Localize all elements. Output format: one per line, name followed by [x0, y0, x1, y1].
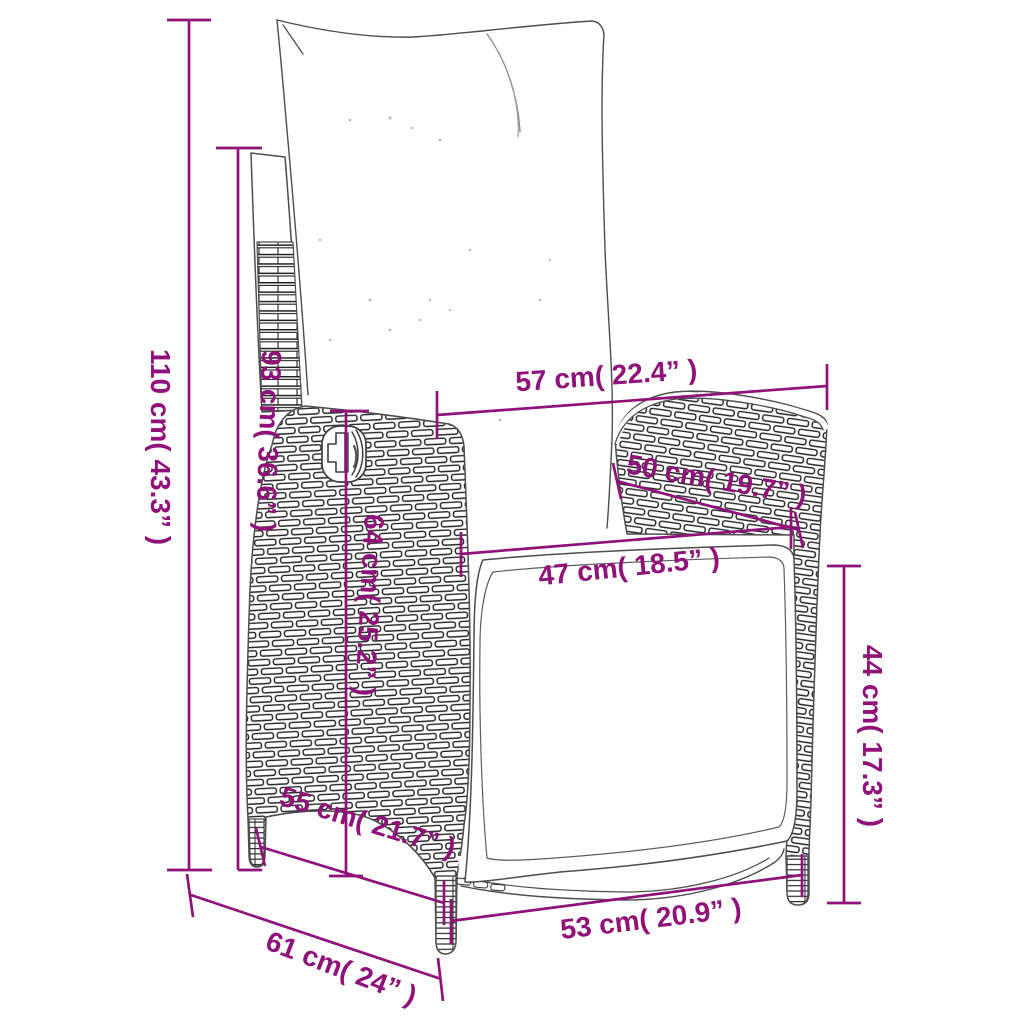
svg-text:110 cm( 43.3” ): 110 cm( 43.3” ) — [145, 349, 176, 545]
svg-text:44 cm( 17.3” ): 44 cm( 17.3” ) — [857, 645, 888, 827]
svg-text:93 cm( 36.6” ): 93 cm( 36.6” ) — [250, 350, 287, 533]
